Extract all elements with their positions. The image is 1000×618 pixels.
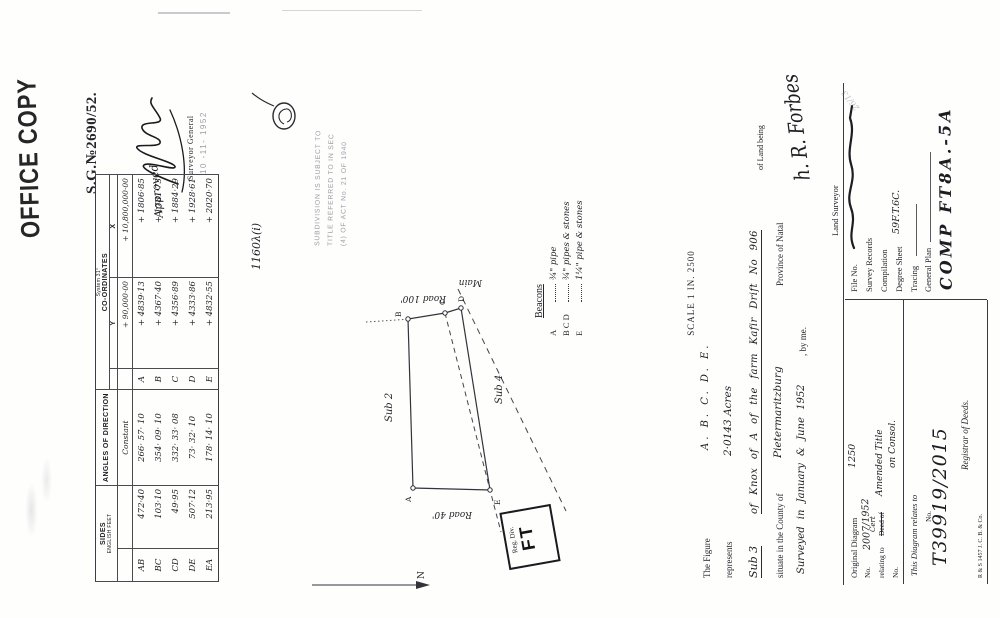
degree-sheet-value: 59F.T.6C. [891, 190, 902, 234]
struck-deed-text: Deed of [877, 512, 886, 536]
constant-row: Constant + 90,000·00 + 10,800,000·00 [118, 175, 133, 582]
beacon-points: B C D [561, 306, 571, 336]
province-label: Province of Natal [775, 223, 785, 286]
road-100-label: Road 100' [400, 293, 447, 303]
table-row: DE507·12 73· 32· 10D + 4333·86+ 1928·61 [184, 175, 201, 582]
parcel-polygon [408, 308, 490, 490]
coords-header: System 31° CO-ORDINATES [96, 175, 110, 390]
beacon-c [443, 311, 447, 315]
degree-sheet-label: Degree Sheet [894, 246, 904, 292]
figure-points: A. B. C. D. E. [700, 343, 711, 450]
file-no-scribble-icon [845, 100, 859, 252]
constant-x: + 10,800,000·00 [118, 175, 133, 278]
beacon-row: A¾" pipe [548, 166, 559, 336]
beacon-b [406, 317, 410, 321]
consol-text: on Consol. [888, 420, 898, 468]
beacon-desc: 1¼" pipe & stones [575, 200, 585, 280]
surveyed-line: Surveyed in January & June 1952 [796, 384, 807, 574]
land-surveyor-title: Land Surveyor [830, 185, 840, 236]
constant-y: + 90,000·00 [118, 278, 133, 369]
vertex-label-a: A [404, 496, 413, 503]
original-diagram-title: Original Diagram [849, 518, 859, 578]
table-row: CD49·95 332· 33· 08C + 4356·89+ 1884·29 [167, 175, 184, 582]
approval-date-stamp: 10 -11- 1952 [199, 111, 208, 174]
relates-title: This Diagram relates to [909, 495, 919, 576]
y-header: Y [110, 278, 118, 369]
north-label: N [417, 571, 427, 579]
surveyor-general-label: Surveyor General [186, 115, 195, 180]
scanned-survey-document: OFFICE COPY S.G.№2690/52. Approved Surve… [0, 0, 1000, 618]
beacon-e [488, 488, 492, 492]
beacon-desc: ¾" pipes & stones [562, 201, 572, 280]
beacons-title: Beacons [534, 166, 545, 318]
dotted-leader [574, 284, 582, 302]
x-header: X [110, 175, 118, 278]
general-plan-entry-line [930, 152, 931, 242]
scan-smudge [20, 440, 58, 540]
survey-records-label: Survey Records [864, 238, 874, 292]
scan-artifact-line [158, 13, 230, 15]
relating-label: relating to [877, 547, 886, 578]
sub-label: Sub 3 [747, 546, 762, 578]
land-being-label: of Land being [756, 125, 765, 170]
represents-label: represents [724, 542, 734, 578]
vertex-label-b: B [394, 311, 403, 317]
extent-value: 2·0143 Acres [722, 386, 734, 456]
internal-boundary-dashed [445, 313, 501, 532]
compilation-label: Compilation [879, 250, 889, 293]
beacon-points: E [574, 306, 584, 336]
dotted-leader [561, 284, 569, 302]
figure-label: The Figure [702, 538, 712, 578]
beacon-desc: ¾" pipe [549, 247, 559, 280]
sides-header: SIDES ENGLISH FEET [96, 486, 118, 582]
vertex-label-e: E [493, 500, 502, 505]
comp-code: COMP FT8A.-5A [935, 106, 956, 290]
neighbor-sub2-label: Sub 2 [384, 393, 395, 422]
constant-label: Constant [118, 390, 133, 486]
dotted-leader [548, 284, 556, 302]
scale-note: SCALE 1 IN. 2500 [686, 218, 696, 368]
original-diagram-note: 1250 [847, 444, 858, 468]
deed-number: T39919/2015 [929, 427, 951, 566]
sides-subheader: ENGLISH FEET [107, 489, 113, 578]
original-no2-label: No. [891, 567, 900, 578]
north-arrow-head-icon [416, 581, 430, 589]
main-road-label: Main [459, 277, 483, 287]
neighbor-sub4-label: Sub 4 [494, 375, 505, 404]
county-name: Pietermaritzburg [772, 366, 784, 458]
left-panel-mid-rule [903, 300, 904, 584]
general-plan-label: General Plan [923, 248, 933, 292]
tracing-label: Tracing [909, 266, 919, 292]
land-surveyor-signature: h. R. Forbes [779, 73, 816, 182]
beacon-d [459, 306, 463, 310]
left-panel-bottom-rule [987, 300, 988, 584]
table-row: BC103·10 354· 09· 10B + 4367·40+ 1781·73 [150, 175, 167, 582]
panel-divider [845, 299, 987, 300]
scan-artifact-line [282, 10, 422, 11]
survey-data-table: SIDES ENGLISH FEET ANGLES OF DIRECTION S… [95, 174, 219, 582]
document-sheet: OFFICE COPY S.G.№2690/52. Approved Surve… [0, 0, 1000, 618]
by-me-label: , by me. [798, 327, 808, 356]
reg-div-stamp: Reg. Div. FT [499, 504, 560, 570]
angles-header: ANGLES OF DIRECTION [96, 390, 118, 486]
original-no-label: No. [863, 567, 872, 578]
beacon-row: E1¼" pipe & stones [574, 166, 585, 336]
property-name: of Knox of A of the farm Kafir Drift No … [749, 230, 762, 514]
beacons-block: Beacons A¾" pipe B C D¾" pipes & stones … [534, 166, 587, 336]
road-continuation-dotted [366, 320, 404, 323]
table-row: AB472·40 266· 57· 10A + 4839·13+ 1806·85 [133, 175, 151, 582]
vertex-label-d: D [457, 296, 466, 302]
reference-code: 1160λ(i) [250, 223, 263, 270]
file-no-label: File No. [849, 264, 859, 292]
beacon-a [411, 486, 415, 490]
situate-label: situate in the County of [775, 494, 785, 579]
replacement-cert-text: Cert [869, 516, 877, 532]
print-code: R & S 1457 J. C. B. & Co. [978, 514, 984, 578]
amended-title-text: Amended Title [875, 429, 885, 496]
table-row: EA213·95 178· 14· 10E + 4832·55+ 2020·70 [201, 175, 219, 582]
registrar-label: Registrar of Deeds. [960, 400, 970, 470]
seal-doodle-icon [248, 90, 304, 136]
tracing-entry-line [916, 204, 917, 256]
office-copy-stamp: OFFICE COPY [11, 77, 46, 238]
table-header-row: SIDES ENGLISH FEET ANGLES OF DIRECTION S… [96, 175, 110, 582]
beacon-row: B C D¾" pipes & stones [561, 166, 572, 336]
road-40-label: Road 40' [432, 509, 473, 519]
beacon-points: A [548, 306, 558, 336]
